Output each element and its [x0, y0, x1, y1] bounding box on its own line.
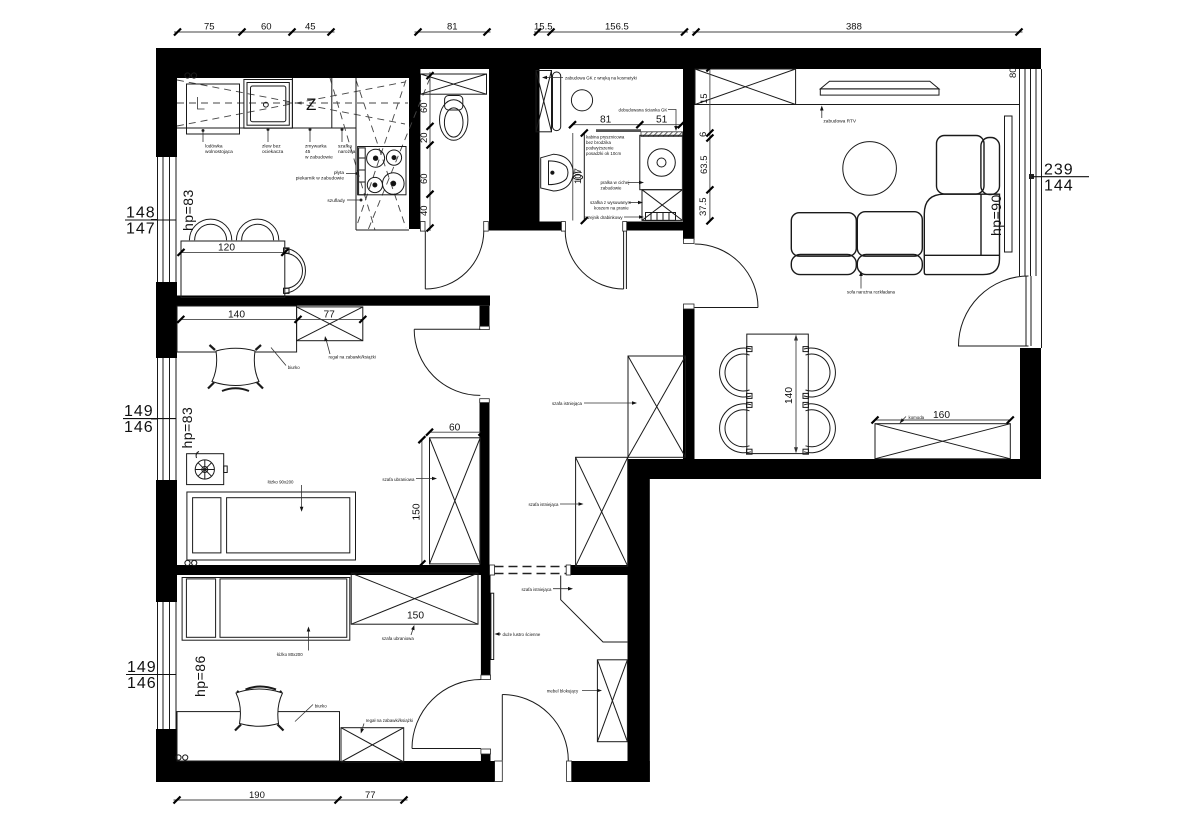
svg-text:140: 140: [784, 387, 795, 404]
svg-text:hp=86: hp=86: [192, 655, 208, 697]
svg-text:zabudowie: zabudowie: [601, 186, 623, 191]
svg-text:37.5: 37.5: [698, 198, 709, 217]
svg-text:narożna: narożna: [338, 149, 356, 155]
svg-text:szafa istniejąca: szafa istniejąca: [528, 502, 559, 507]
svg-text:pralka w cichej: pralka w cichej: [601, 180, 630, 185]
svg-text:sofa narożna rozkładana: sofa narożna rozkładana: [847, 290, 896, 295]
svg-text:zabudowa RTV: zabudowa RTV: [823, 119, 857, 125]
svg-text:biurko: biurko: [315, 703, 328, 708]
svg-text:regał na zabawki/książki: regał na zabawki/książki: [329, 355, 376, 360]
svg-text:szafka: szafka: [338, 144, 352, 150]
svg-text:duże lustro ścienne: duże lustro ścienne: [503, 632, 541, 637]
svg-text:388: 388: [846, 22, 862, 33]
svg-text:lodówka: lodówka: [205, 144, 223, 150]
svg-text:81: 81: [447, 22, 458, 33]
svg-text:146: 146: [127, 675, 157, 692]
svg-text:bez brodzika: bez brodzika: [586, 140, 611, 145]
svg-text:60: 60: [419, 102, 430, 113]
svg-text:148: 148: [126, 205, 156, 222]
svg-text:150: 150: [407, 610, 424, 621]
svg-text:147: 147: [126, 221, 156, 238]
svg-text:239: 239: [1044, 161, 1074, 178]
svg-text:51: 51: [656, 114, 668, 125]
svg-text:szafa ubraniowa: szafa ubraniowa: [382, 636, 415, 641]
svg-text:156.5: 156.5: [605, 22, 629, 33]
svg-text:szafa istniejąca: szafa istniejąca: [521, 587, 552, 592]
svg-text:45: 45: [305, 22, 316, 33]
svg-text:koszem na pranie: koszem na pranie: [594, 206, 629, 211]
svg-text:posadzki ok 10cm: posadzki ok 10cm: [586, 151, 621, 156]
svg-text:łóżko 90x200: łóżko 90x200: [268, 480, 294, 485]
svg-text:kabina prysznicowa: kabina prysznicowa: [586, 135, 625, 140]
svg-text:podwyższenie: podwyższenie: [586, 146, 614, 151]
svg-text:łóżko 80x200: łóżko 80x200: [277, 652, 303, 657]
svg-text:grzejnik drabinkowy: grzejnik drabinkowy: [584, 215, 623, 220]
svg-text:140: 140: [228, 309, 245, 320]
svg-text:szafa ubraniowa: szafa ubraniowa: [382, 477, 415, 482]
svg-text:szafka z wysuwanym: szafka z wysuwanym: [590, 200, 632, 205]
svg-text:45: 45: [305, 149, 311, 155]
svg-text:ociekacza: ociekacza: [262, 149, 284, 155]
svg-text:149: 149: [127, 659, 157, 676]
svg-text:60: 60: [449, 423, 461, 434]
svg-text:biurko: biurko: [288, 365, 301, 370]
svg-text:146: 146: [124, 419, 154, 436]
svg-text:63.5: 63.5: [699, 156, 710, 175]
svg-text:77: 77: [324, 309, 336, 320]
svg-text:190: 190: [249, 790, 265, 801]
svg-text:Z: Z: [306, 95, 316, 114]
svg-text:20: 20: [419, 132, 430, 143]
svg-text:60: 60: [261, 22, 272, 33]
svg-text:60: 60: [419, 173, 430, 184]
svg-text:w zabudowie: w zabudowie: [305, 155, 333, 161]
svg-text:zmywarka: zmywarka: [305, 144, 327, 150]
svg-text:mebel blokujący: mebel blokujący: [547, 689, 579, 694]
svg-text:144: 144: [1044, 177, 1074, 194]
svg-text:150: 150: [412, 503, 423, 520]
svg-text:hp=83: hp=83: [179, 407, 195, 449]
svg-text:zabudowa GK z wnęką na kosmety: zabudowa GK z wnęką na kosmetyki: [565, 76, 637, 81]
svg-text:piekarnik w zabudowie: piekarnik w zabudowie: [296, 176, 345, 182]
svg-text:77: 77: [365, 790, 376, 801]
svg-text:160: 160: [933, 410, 950, 421]
svg-text:40: 40: [419, 205, 430, 216]
svg-text:wolnostojąca: wolnostojąca: [205, 149, 233, 155]
svg-text:hp=90: hp=90: [988, 194, 1004, 236]
svg-text:szafa istniejąca: szafa istniejąca: [552, 401, 583, 406]
svg-text:6: 6: [698, 132, 709, 137]
svg-text:81: 81: [600, 114, 612, 125]
svg-text:komoda: komoda: [909, 415, 925, 420]
svg-text:15: 15: [699, 93, 710, 104]
svg-text:80: 80: [1008, 67, 1019, 78]
svg-text:75: 75: [204, 22, 215, 33]
svg-text:hp=83: hp=83: [180, 189, 196, 231]
svg-text:płyta: płyta: [334, 170, 344, 176]
svg-text:15.5: 15.5: [534, 22, 553, 33]
svg-text:szuflady: szuflady: [327, 198, 345, 204]
svg-text:dobudowana ścianka GK: dobudowana ścianka GK: [619, 108, 668, 113]
svg-text:149: 149: [124, 403, 154, 420]
svg-text:regał na zabawki/książki: regał na zabawki/książki: [366, 718, 413, 723]
svg-text:120: 120: [218, 243, 235, 254]
svg-text:zlew bez: zlew bez: [262, 144, 281, 150]
